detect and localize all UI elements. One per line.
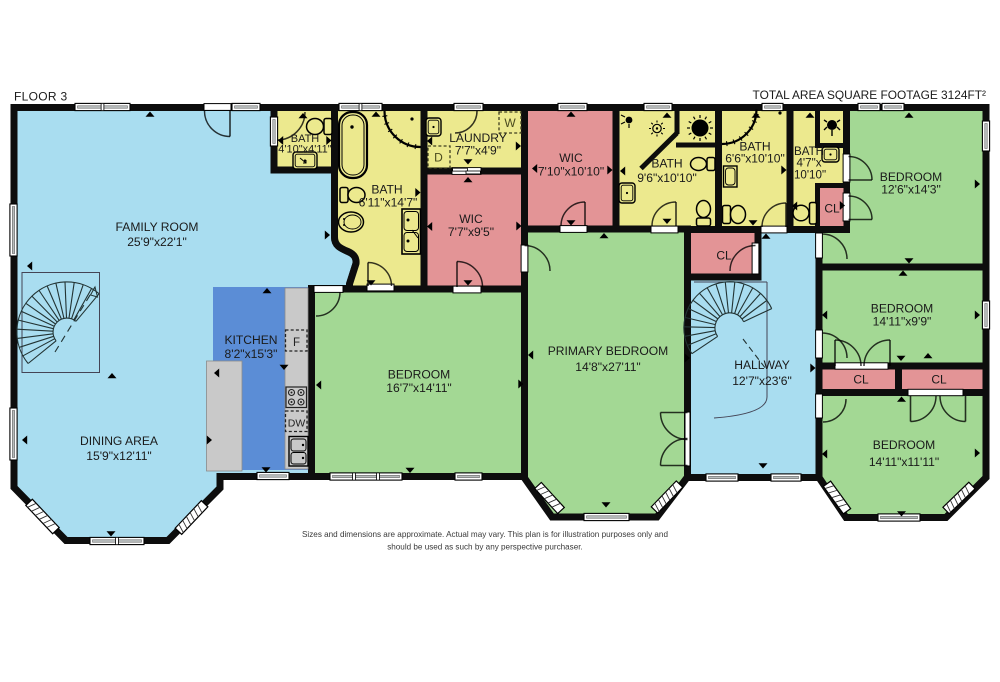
svg-text:WIC: WIC bbox=[459, 212, 483, 226]
svg-text:FAMILY ROOM: FAMILY ROOM bbox=[116, 220, 199, 234]
svg-text:TOTAL AREA SQUARE FOOTAGE 3124: TOTAL AREA SQUARE FOOTAGE 3124FT² bbox=[753, 88, 987, 102]
svg-text:FLOOR 3: FLOOR 3 bbox=[14, 90, 67, 104]
svg-text:25'9"x22'1": 25'9"x22'1" bbox=[127, 235, 187, 249]
svg-text:BATH: BATH bbox=[651, 157, 682, 171]
svg-text:7'7"x4'9": 7'7"x4'9" bbox=[455, 144, 501, 158]
svg-text:7'7"x9'5": 7'7"x9'5" bbox=[448, 225, 494, 239]
svg-text:14'11"x11'11": 14'11"x11'11" bbox=[869, 455, 939, 469]
svg-text:DW: DW bbox=[288, 418, 306, 430]
svg-text:12'6"x14'3": 12'6"x14'3" bbox=[881, 183, 941, 197]
svg-text:14'8"x27'11": 14'8"x27'11" bbox=[575, 360, 640, 374]
svg-text:KITCHEN: KITCHEN bbox=[224, 333, 277, 347]
svg-text:CL: CL bbox=[853, 373, 869, 387]
svg-text:6'6"x10'10": 6'6"x10'10" bbox=[725, 152, 785, 166]
svg-text:DINING AREA: DINING AREA bbox=[80, 434, 159, 448]
svg-text:F: F bbox=[293, 337, 300, 349]
svg-text:8'2"x15'3": 8'2"x15'3" bbox=[225, 347, 278, 361]
svg-text:CL: CL bbox=[824, 202, 840, 216]
svg-text:Sizes and dimensions are appro: Sizes and dimensions are approximate. Ac… bbox=[302, 530, 668, 539]
svg-text:W: W bbox=[504, 116, 516, 130]
svg-text:BEDROOM: BEDROOM bbox=[873, 438, 936, 452]
svg-text:4'10"x4'11": 4'10"x4'11" bbox=[278, 144, 331, 156]
svg-text:PRIMARY BEDROOM: PRIMARY BEDROOM bbox=[548, 344, 669, 358]
svg-text:WIC: WIC bbox=[559, 151, 583, 165]
svg-text:16'7"x14'11": 16'7"x14'11" bbox=[386, 381, 451, 395]
svg-text:BATH: BATH bbox=[371, 183, 402, 197]
svg-text:BEDROOM: BEDROOM bbox=[388, 368, 451, 382]
svg-text:HALLWAY: HALLWAY bbox=[734, 358, 790, 372]
svg-text:15'9"x12'11": 15'9"x12'11" bbox=[86, 449, 151, 463]
svg-text:should be used as such by any: should be used as such by any perspectiv… bbox=[387, 543, 583, 552]
svg-text:7'10"x10'10": 7'10"x10'10" bbox=[538, 165, 604, 179]
svg-text:D: D bbox=[434, 151, 443, 165]
svg-text:14'11"x9'9": 14'11"x9'9" bbox=[873, 315, 932, 329]
svg-text:CL: CL bbox=[931, 373, 947, 387]
svg-text:10'10": 10'10" bbox=[794, 169, 826, 182]
svg-text:BEDROOM: BEDROOM bbox=[871, 302, 934, 316]
svg-text:6'11"x14'7": 6'11"x14'7" bbox=[359, 196, 418, 210]
svg-text:CL: CL bbox=[716, 249, 732, 263]
svg-text:9'6"x10'10": 9'6"x10'10" bbox=[637, 171, 697, 185]
svg-text:12'7"x23'6": 12'7"x23'6" bbox=[732, 374, 792, 388]
